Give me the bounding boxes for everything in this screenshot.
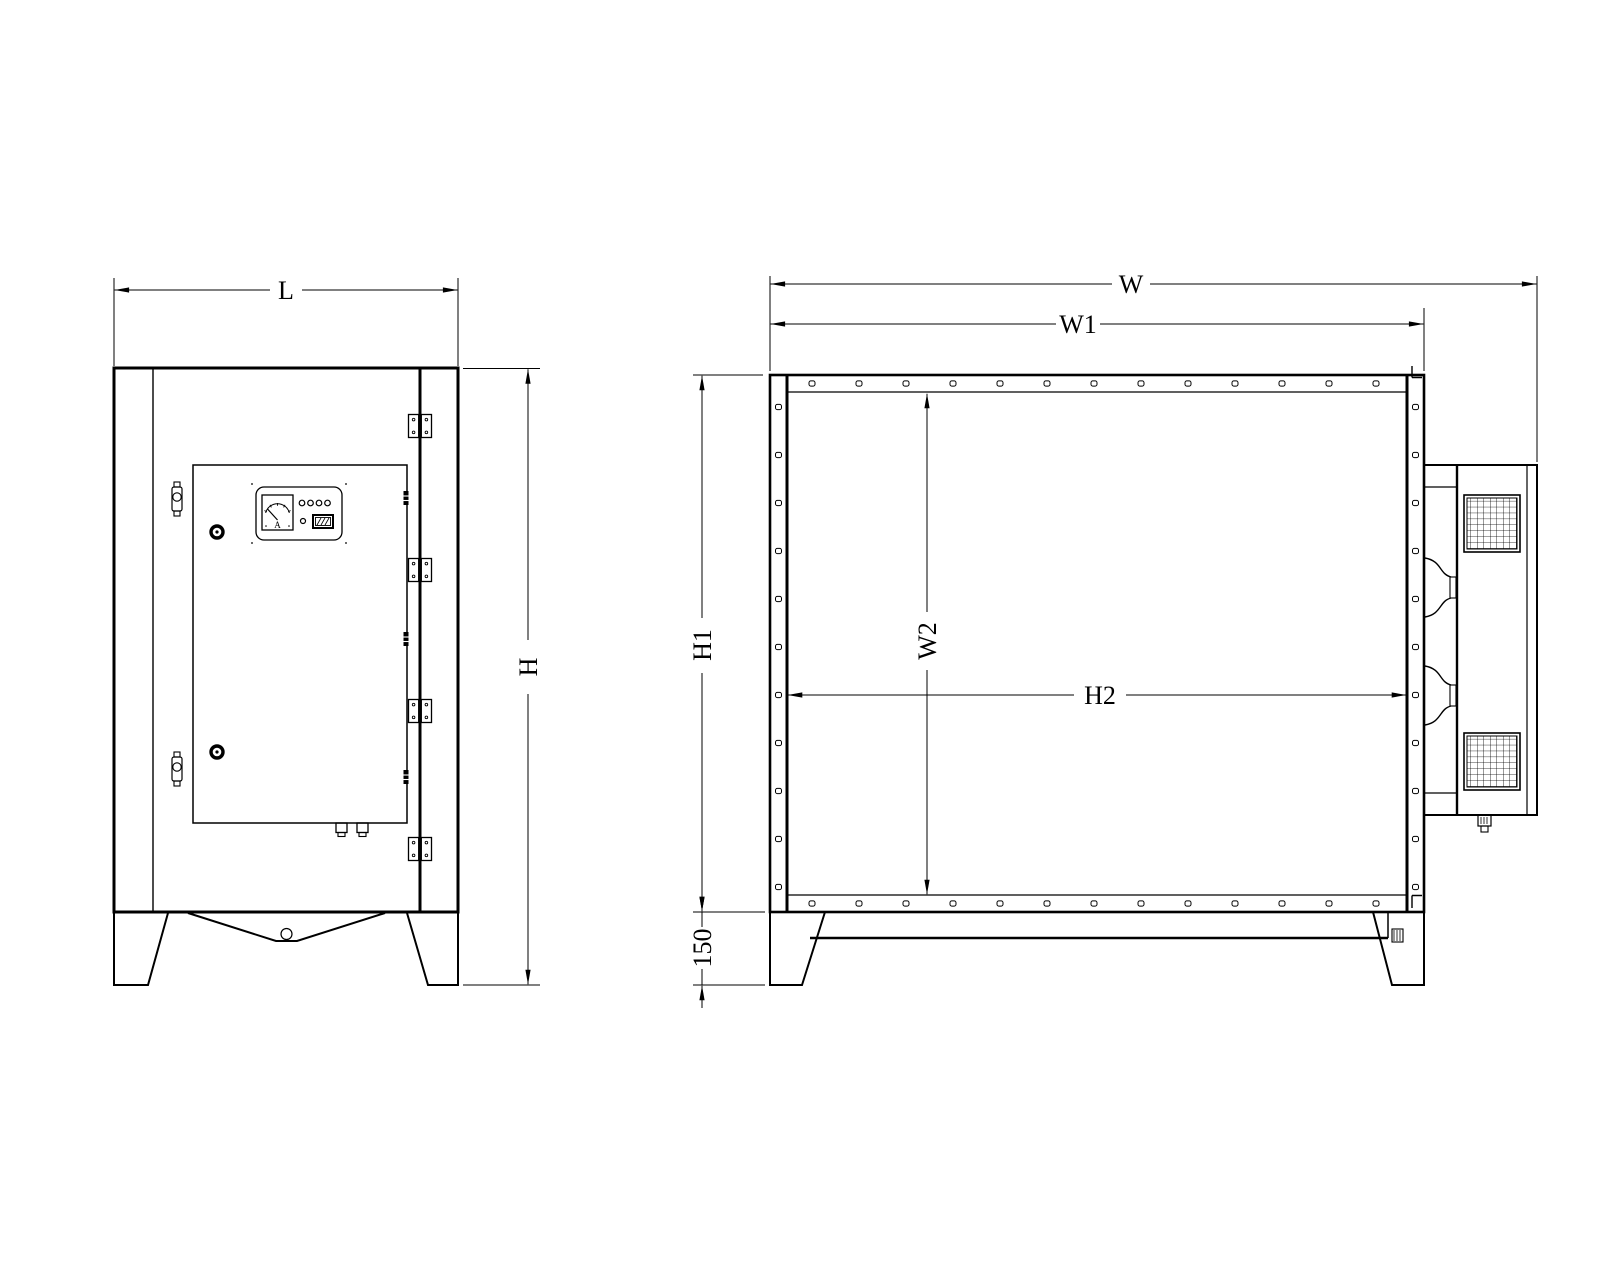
insulator-bushing-bottom [1425, 666, 1456, 725]
dimension-W: W [770, 270, 1537, 462]
control-panel: A [251, 483, 347, 544]
dim-H2-label: H2 [1084, 681, 1116, 710]
indicator-lights [299, 500, 330, 523]
dimension-L: L [114, 276, 458, 366]
dimension-H2: H2 [788, 681, 1406, 710]
dim-W2-label: W2 [913, 622, 942, 660]
drawing-sheet: A [0, 0, 1600, 1280]
insulator-bushing-top [1425, 558, 1456, 617]
flange-bolts-right [1413, 404, 1419, 889]
dim-H-label: H [514, 657, 543, 676]
flange-bolts-top [809, 381, 1379, 386]
drain-hopper [188, 913, 385, 941]
front-legs [114, 912, 458, 985]
ammeter-letter: A [274, 520, 281, 530]
dim-W-label: W [1119, 270, 1144, 299]
dimension-W1: W1 [771, 308, 1424, 371]
flange-bolts-left [776, 404, 782, 889]
front-view: A [114, 276, 543, 985]
dimension-H1: H1 [688, 375, 763, 911]
louver-grille-top [1464, 495, 1520, 552]
dimension-W2: W2 [913, 394, 942, 894]
ammeter-gauge: A [262, 495, 293, 530]
side-view: W W1 H1 W2 H2 [688, 270, 1537, 1008]
door-clips [172, 482, 182, 786]
corner-bracket-bottom [1412, 896, 1422, 909]
dim-L-label: L [278, 276, 294, 305]
dimension-H: H [463, 369, 543, 986]
side-frame [770, 375, 1424, 912]
dimension-150: 150 [688, 889, 765, 1008]
door-panel [193, 465, 407, 823]
dim-W1-label: W1 [1059, 310, 1097, 339]
cable-gland [1478, 815, 1491, 832]
louver-grille-bottom [1464, 733, 1520, 790]
dim-150-label: 150 [688, 929, 717, 968]
panel-switch [313, 515, 333, 528]
side-legs [770, 912, 1424, 985]
gauge-needle [268, 509, 278, 520]
drain-plug [1392, 929, 1403, 942]
side-box [1424, 465, 1537, 832]
door-bottom-connectors [336, 823, 368, 837]
flange-bolts-bottom [809, 901, 1379, 906]
drain-hole [281, 929, 292, 940]
power-lamp [301, 519, 306, 524]
door-knobs [211, 526, 223, 758]
dimensional-drawing: A [0, 0, 1600, 1280]
dim-H1-label: H1 [688, 629, 717, 661]
bottom-tray [810, 912, 1403, 942]
